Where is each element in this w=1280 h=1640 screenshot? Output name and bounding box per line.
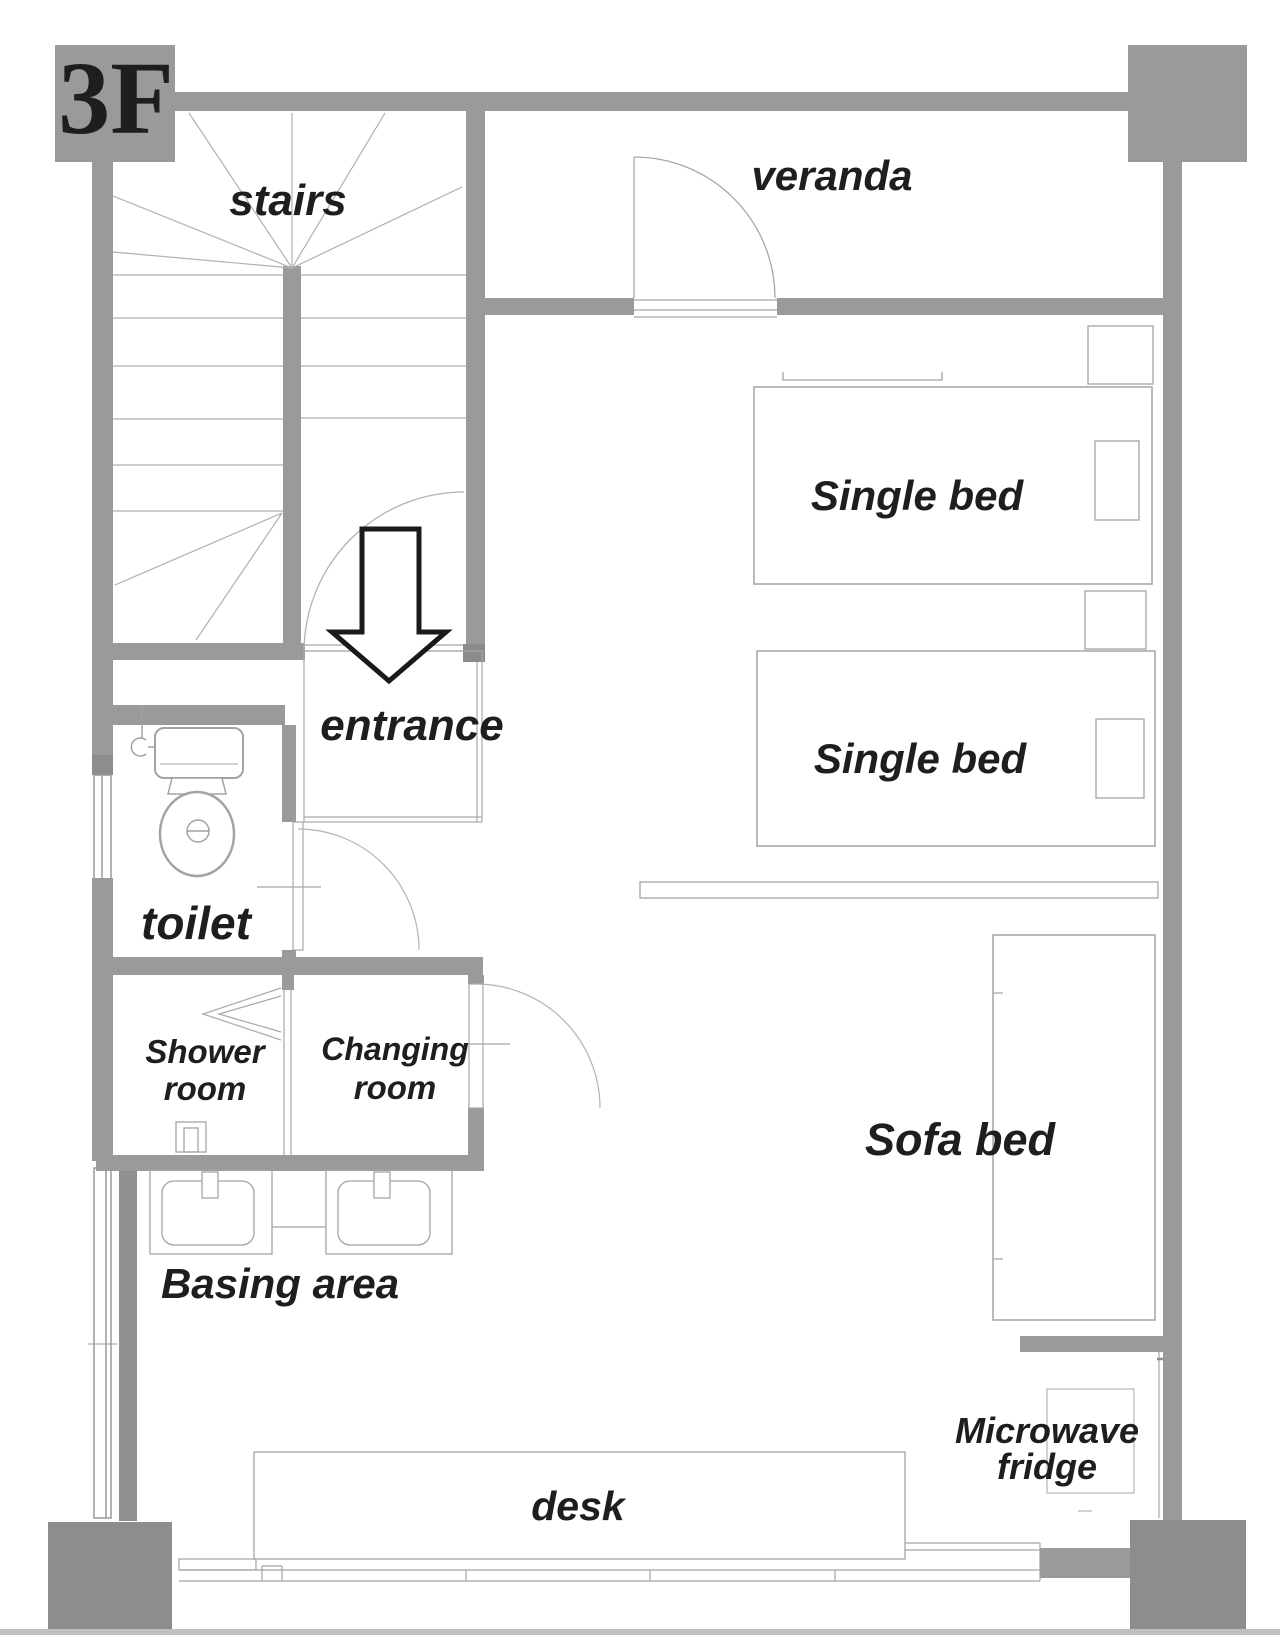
svg-text:veranda: veranda — [751, 152, 912, 199]
svg-text:3F: 3F — [58, 41, 174, 156]
svg-text:Sofa bed: Sofa bed — [865, 1114, 1057, 1165]
svg-text:fridge: fridge — [997, 1446, 1097, 1487]
svg-text:entrance: entrance — [320, 701, 503, 750]
svg-text:desk: desk — [531, 1483, 627, 1529]
svg-text:Single bed: Single bed — [814, 735, 1028, 782]
svg-text:Single bed: Single bed — [811, 472, 1025, 519]
svg-text:Shower: Shower — [145, 1033, 266, 1070]
svg-text:stairs: stairs — [229, 176, 346, 225]
svg-text:Microwave: Microwave — [955, 1410, 1139, 1451]
svg-text:room: room — [164, 1070, 247, 1107]
svg-text:toilet: toilet — [141, 897, 253, 949]
svg-text:Basing area: Basing area — [161, 1260, 399, 1307]
svg-text:room: room — [354, 1069, 437, 1106]
svg-text:Changing: Changing — [321, 1031, 469, 1067]
